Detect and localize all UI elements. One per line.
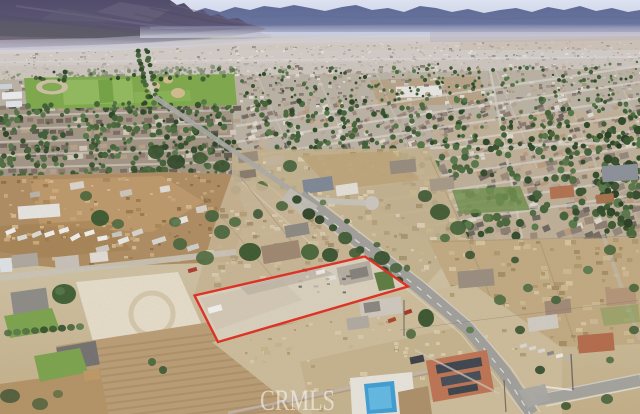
svg-text:CRMLS: CRMLS <box>260 384 335 414</box>
